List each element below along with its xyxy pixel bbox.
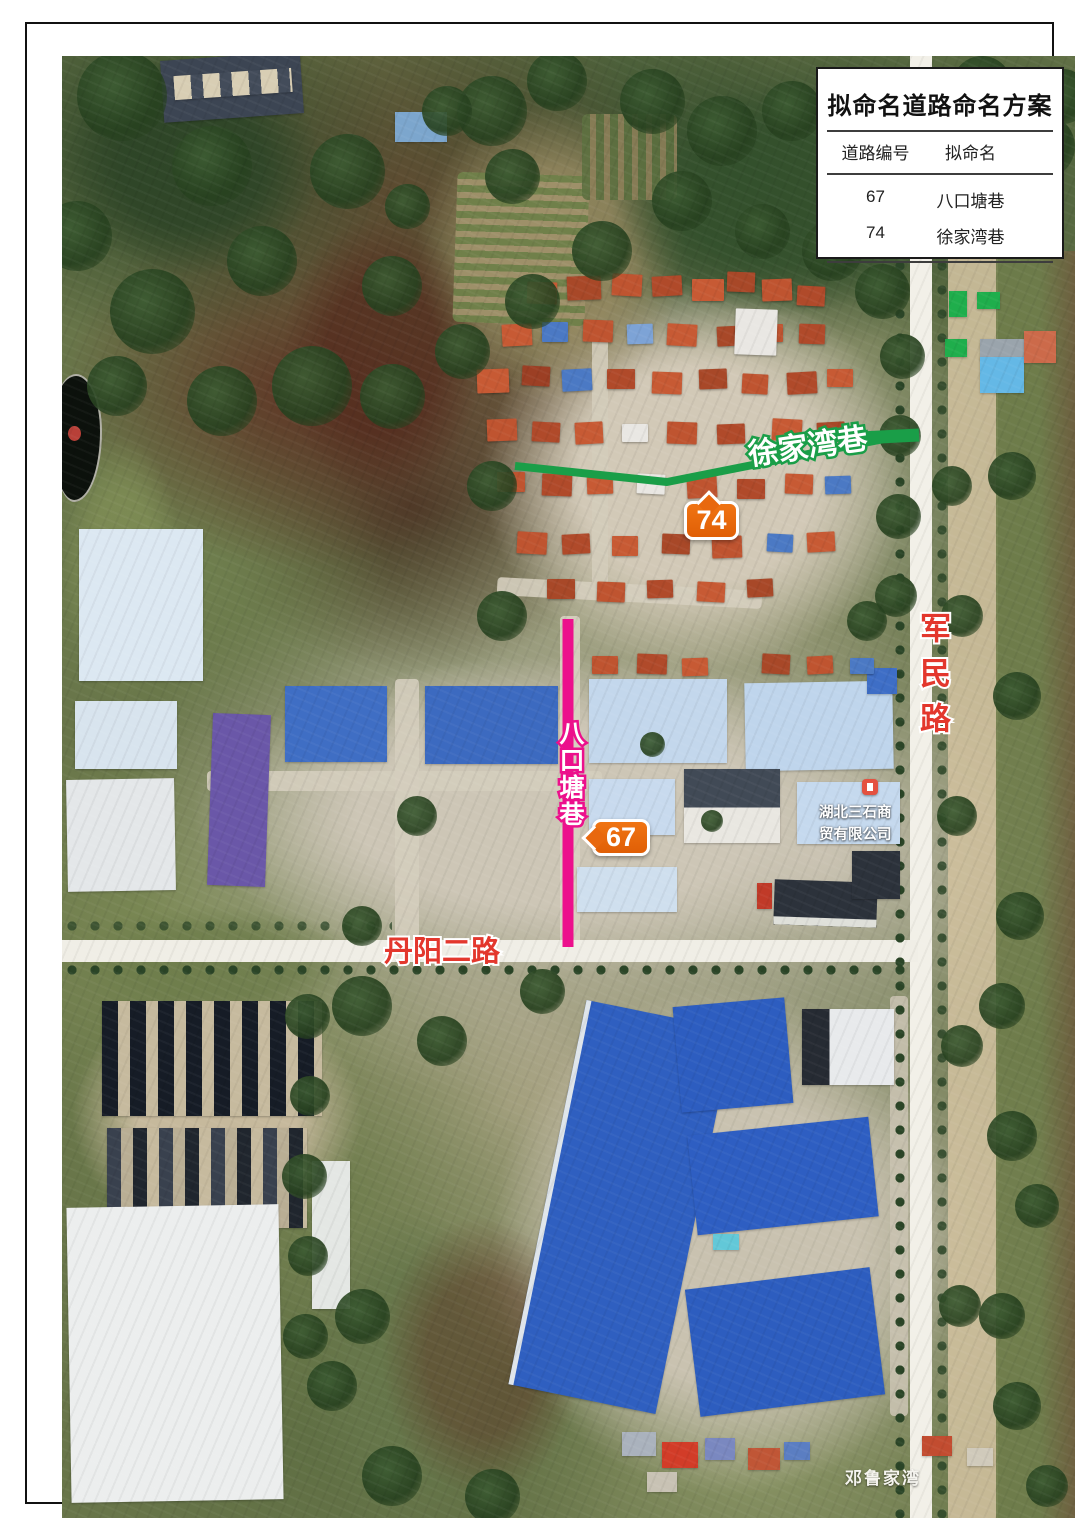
- map-building: [1024, 331, 1056, 363]
- village-house: [592, 656, 618, 674]
- village-house: [737, 479, 765, 499]
- tree: [283, 1314, 328, 1359]
- map-building: [622, 1432, 656, 1456]
- tree: [988, 452, 1036, 500]
- village-house: [561, 368, 592, 392]
- map-building: [757, 883, 772, 909]
- village-label: 邓鲁家湾: [845, 1464, 921, 1489]
- map-building: [207, 713, 271, 887]
- map-building: [285, 686, 387, 762]
- village-house: [825, 476, 852, 495]
- tree: [701, 810, 723, 832]
- map-building: [713, 1234, 739, 1250]
- village-house: [652, 371, 683, 394]
- legend-row-74-name: 徐家湾巷: [923, 223, 1018, 248]
- village-house: [636, 473, 665, 494]
- tree: [110, 269, 195, 354]
- village-house: [622, 424, 648, 442]
- tree: [397, 796, 437, 836]
- tree: [332, 976, 392, 1036]
- village-house: [547, 579, 575, 599]
- tree: [1015, 1184, 1059, 1228]
- village-house: [587, 476, 614, 495]
- tree: [876, 494, 921, 539]
- village-house: [785, 474, 814, 495]
- map-building: [673, 997, 794, 1112]
- tree: [477, 591, 527, 641]
- tree: [652, 171, 712, 231]
- tree: [880, 334, 925, 379]
- tree: [735, 204, 790, 259]
- tree: [310, 134, 385, 209]
- tree: [572, 221, 632, 281]
- map-building: [980, 357, 1024, 393]
- village-house: [647, 580, 674, 599]
- village-house: [807, 655, 834, 674]
- road-number-badge-67: 67: [592, 819, 650, 856]
- tree: [290, 1076, 330, 1116]
- tree: [687, 96, 757, 166]
- village-house: [583, 319, 614, 342]
- village-house: [850, 658, 874, 674]
- map-building: [977, 292, 1000, 309]
- map-building: [425, 686, 558, 764]
- map-building: [577, 867, 677, 912]
- village-house: [786, 371, 817, 395]
- map-building: [66, 1204, 283, 1503]
- pond-buoy: [68, 426, 81, 441]
- tree: [307, 1361, 357, 1411]
- tree: [993, 1382, 1041, 1430]
- tree: [996, 892, 1044, 940]
- tree: [527, 56, 587, 111]
- village-house: [734, 308, 778, 355]
- tree: [640, 732, 665, 757]
- tree: [979, 983, 1025, 1029]
- legend-row-67-name: 八口塘巷: [923, 187, 1018, 212]
- village-house: [796, 285, 825, 306]
- village-house: [521, 365, 550, 386]
- village-house: [682, 658, 709, 677]
- village-house: [717, 424, 746, 445]
- map-building: [852, 851, 900, 899]
- village-house: [747, 578, 774, 597]
- map-building: [744, 681, 894, 772]
- village-house: [696, 581, 725, 602]
- tree: [360, 364, 425, 429]
- tree: [941, 1025, 983, 1067]
- tree: [362, 1446, 422, 1506]
- road-label-junmin: 军民路: [910, 612, 955, 747]
- village-house: [487, 418, 518, 441]
- badge-67-number: 67: [606, 822, 636, 853]
- village-house: [561, 533, 590, 554]
- legend-col-road-code: 道路编号: [828, 139, 923, 164]
- poi-icon: [862, 779, 878, 795]
- map-building: [66, 778, 176, 892]
- tree: [465, 1469, 520, 1519]
- tree: [285, 994, 330, 1039]
- tree: [335, 1289, 390, 1344]
- village-house: [799, 324, 826, 345]
- village-house: [767, 533, 794, 552]
- tree: [987, 1111, 1037, 1161]
- tree: [937, 796, 977, 836]
- map-building: [687, 1117, 878, 1235]
- village-house: [827, 369, 853, 387]
- map-building: [748, 1448, 780, 1470]
- map-building: [967, 1448, 993, 1466]
- village-house: [477, 368, 510, 393]
- map-frame: 徐家湾巷 八口塘巷 军民路 丹阳二路 74 67 湖北三石商贸有限公司 邓鲁家湾…: [25, 22, 1054, 1504]
- village-house: [667, 421, 698, 444]
- village-house: [516, 531, 547, 555]
- village-house: [762, 278, 793, 301]
- tree: [87, 356, 147, 416]
- tree: [932, 466, 972, 506]
- village-house: [597, 582, 626, 603]
- tree: [227, 226, 297, 296]
- legend-divider: [827, 173, 1053, 175]
- legend-row-74-code: 74: [828, 223, 923, 248]
- tree: [435, 324, 490, 379]
- tree: [939, 1285, 981, 1327]
- tree: [520, 969, 565, 1014]
- village-house: [531, 421, 560, 442]
- tree: [762, 81, 822, 141]
- tree: [422, 86, 472, 136]
- tree: [855, 264, 910, 319]
- legend-row-67-code: 67: [828, 187, 923, 212]
- tree: [505, 274, 560, 329]
- tree: [417, 1016, 467, 1066]
- tree: [847, 601, 887, 641]
- village-house: [699, 369, 728, 390]
- junmin-road-surface: [910, 56, 932, 1518]
- tree: [620, 69, 685, 134]
- tree: [467, 461, 517, 511]
- tree: [282, 1154, 327, 1199]
- village-house: [651, 275, 682, 297]
- village-house: [761, 653, 790, 674]
- tree: [485, 149, 540, 204]
- map-building: [75, 701, 177, 769]
- village-house: [741, 373, 768, 394]
- legend-divider: [827, 130, 1053, 132]
- tree: [342, 906, 382, 946]
- road-label-bakoutang: 八口塘巷: [552, 720, 588, 828]
- map-building: [802, 1009, 894, 1085]
- tree: [979, 1293, 1025, 1339]
- road-number-badge-74: 74: [684, 501, 739, 540]
- village-house: [806, 531, 835, 552]
- map-building: [685, 1267, 885, 1417]
- village-house: [692, 279, 724, 301]
- legend-title: 拟命名道路命名方案: [818, 86, 1062, 121]
- map-building: [945, 339, 967, 357]
- map-building: [79, 529, 203, 681]
- village-house: [727, 272, 756, 293]
- tree: [362, 256, 422, 316]
- dirt-path: [592, 326, 608, 586]
- tree: [993, 672, 1041, 720]
- road-label-danyang: 丹阳二路: [384, 928, 500, 970]
- legend-row-67: 67 八口塘巷: [818, 187, 1062, 212]
- map-building: [662, 1442, 698, 1468]
- tree: [272, 346, 352, 426]
- village-house: [542, 473, 573, 496]
- poi-label: 湖北三石商贸有限公司: [819, 802, 897, 847]
- tree: [385, 184, 430, 229]
- map-building: [705, 1438, 735, 1460]
- map-building: [922, 1436, 952, 1456]
- legend-col-proposed-name: 拟命名: [923, 139, 1018, 164]
- tree: [1026, 1465, 1068, 1507]
- village-house: [607, 369, 635, 389]
- village-house: [666, 323, 697, 347]
- legend-header-row: 道路编号 拟命名: [818, 139, 1062, 164]
- map-building: [684, 769, 780, 843]
- village-house: [574, 421, 603, 444]
- legend-panel: 拟命名道路命名方案 道路编号 拟命名 67 八口塘巷 74 徐家湾巷: [816, 67, 1064, 259]
- tree: [288, 1236, 328, 1276]
- tree: [187, 366, 257, 436]
- legend-divider: [827, 261, 1053, 263]
- tree: [172, 126, 252, 206]
- village-house: [612, 536, 638, 556]
- map-building: [949, 291, 967, 317]
- satellite-map: 徐家湾巷 八口塘巷 军民路 丹阳二路 74 67 湖北三石商贸有限公司 邓鲁家湾…: [62, 56, 1075, 1518]
- badge-74-number: 74: [696, 505, 726, 536]
- village-house: [627, 324, 654, 345]
- legend-row-74: 74 徐家湾巷: [818, 223, 1062, 248]
- map-building: [784, 1442, 810, 1460]
- tree: [879, 415, 921, 457]
- map-building: [647, 1472, 677, 1492]
- village-house: [637, 653, 668, 674]
